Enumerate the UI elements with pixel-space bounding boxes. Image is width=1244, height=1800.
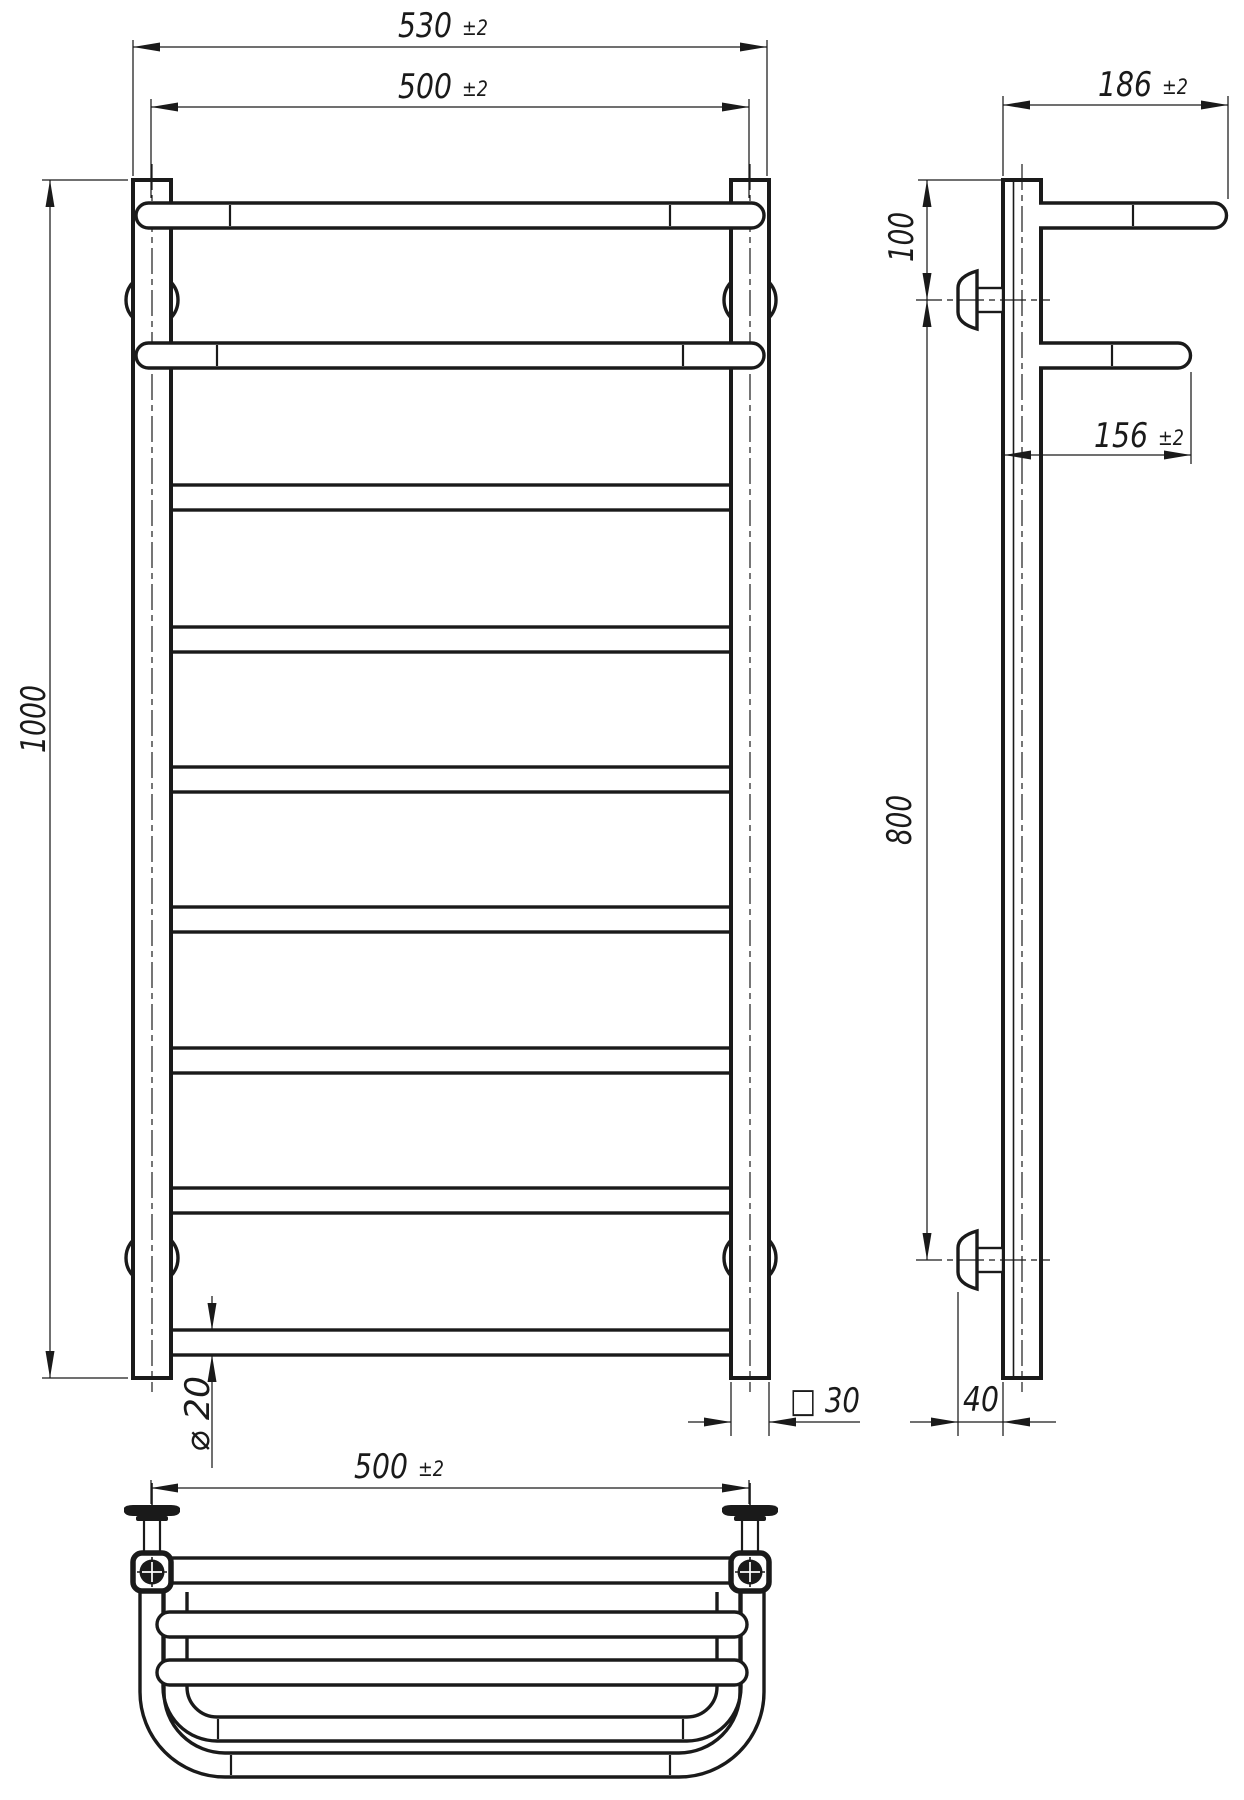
rung — [169, 767, 733, 792]
front-shelf-rungs — [136, 203, 764, 368]
dim-label-156: 156 — [1094, 416, 1148, 456]
dim-offset-100: 100 — [882, 180, 1008, 300]
bar-mid-1 — [157, 1612, 747, 1637]
screw-flange-lip — [136, 1516, 168, 1521]
side-shelf-bar-second — [1039, 343, 1191, 368]
screw-flange-lip — [734, 1516, 766, 1521]
rung — [169, 627, 733, 652]
rung — [169, 1330, 733, 1355]
side-view: 186 ±2 100 800 156 ±2 — [880, 65, 1228, 1436]
screw-flange — [722, 1505, 778, 1516]
bottom-right-mount — [722, 1483, 778, 1591]
dim-label-530: 530 — [398, 6, 452, 46]
dim-label-186: 186 — [1098, 65, 1152, 105]
dim-post-section: □ 30 — [688, 1381, 860, 1436]
dim-label-100: 100 — [882, 212, 922, 262]
bottom-view: 500 ±2 — [124, 1447, 778, 1777]
shelf-rung-second — [136, 343, 764, 368]
dim-width-500: 500 ±2 — [151, 67, 749, 198]
drawing-sheet: 1000 530 ±2 500 ±2 ⌀ 20 — [0, 0, 1244, 1800]
dim-tol-500: ±2 — [462, 77, 488, 101]
rungs-projection-bar — [171, 1558, 731, 1583]
rung — [169, 1048, 733, 1073]
bar-mid-2 — [157, 1660, 747, 1685]
dim-tol-186: ±2 — [1162, 75, 1188, 99]
dim-label-40: 40 — [963, 1380, 999, 1420]
dim-tol-bottom-500: ±2 — [418, 1457, 444, 1481]
rung — [169, 907, 733, 932]
screw-flange — [124, 1505, 180, 1516]
dim-span-800: 800 — [880, 300, 932, 1260]
dim-tube-diameter: ⌀ 20 — [178, 1296, 218, 1468]
front-view: 1000 530 ±2 500 ±2 ⌀ 20 — [14, 6, 860, 1468]
dim-bottom-500: 500 ±2 — [151, 1447, 749, 1504]
side-post — [1003, 180, 1041, 1378]
dim-label-d20: ⌀ 20 — [178, 1376, 218, 1452]
dim-label-800: 800 — [880, 795, 920, 845]
front-rungs — [169, 485, 733, 1355]
dim-label-1000: 1000 — [14, 685, 54, 753]
bottom-left-mount — [124, 1483, 180, 1591]
dim-height-1000: 1000 — [14, 180, 128, 1378]
dim-tol-156: ±2 — [1158, 426, 1184, 450]
rung — [169, 485, 733, 510]
rung — [169, 1188, 733, 1213]
dim-label-bottom-500: 500 — [354, 1447, 408, 1487]
dim-tol-530: ±2 — [462, 16, 488, 40]
dim-label-sq30: □ 30 — [790, 1381, 860, 1421]
dim-label-500: 500 — [398, 67, 452, 107]
